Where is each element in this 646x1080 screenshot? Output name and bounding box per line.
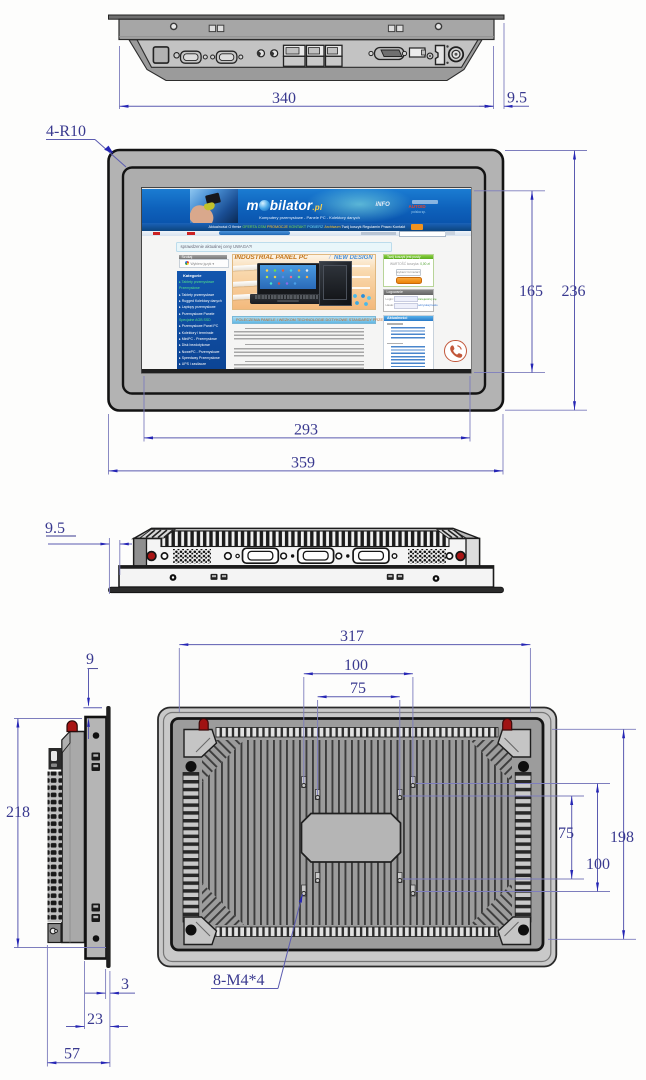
svg-text:218: 218	[6, 804, 30, 821]
svg-text:359: 359	[291, 455, 315, 472]
svg-text:100: 100	[586, 856, 610, 873]
svg-text:9.5: 9.5	[507, 90, 527, 107]
svg-text:165: 165	[519, 283, 543, 300]
svg-text:9.5: 9.5	[45, 520, 65, 537]
svg-text:4-R10: 4-R10	[46, 123, 86, 140]
svg-text:236: 236	[562, 283, 586, 300]
svg-text:23: 23	[87, 1011, 103, 1028]
svg-text:198: 198	[610, 829, 634, 846]
svg-text:57: 57	[64, 1046, 80, 1063]
svg-text:9: 9	[86, 651, 94, 668]
svg-text:340: 340	[272, 90, 296, 107]
svg-text:317: 317	[340, 628, 364, 645]
svg-text:75: 75	[558, 825, 574, 842]
svg-text:100: 100	[344, 657, 368, 674]
svg-text:8-M4*4: 8-M4*4	[213, 972, 265, 989]
svg-text:293: 293	[294, 422, 318, 439]
svg-text:3: 3	[121, 976, 129, 993]
svg-text:75: 75	[350, 680, 366, 697]
